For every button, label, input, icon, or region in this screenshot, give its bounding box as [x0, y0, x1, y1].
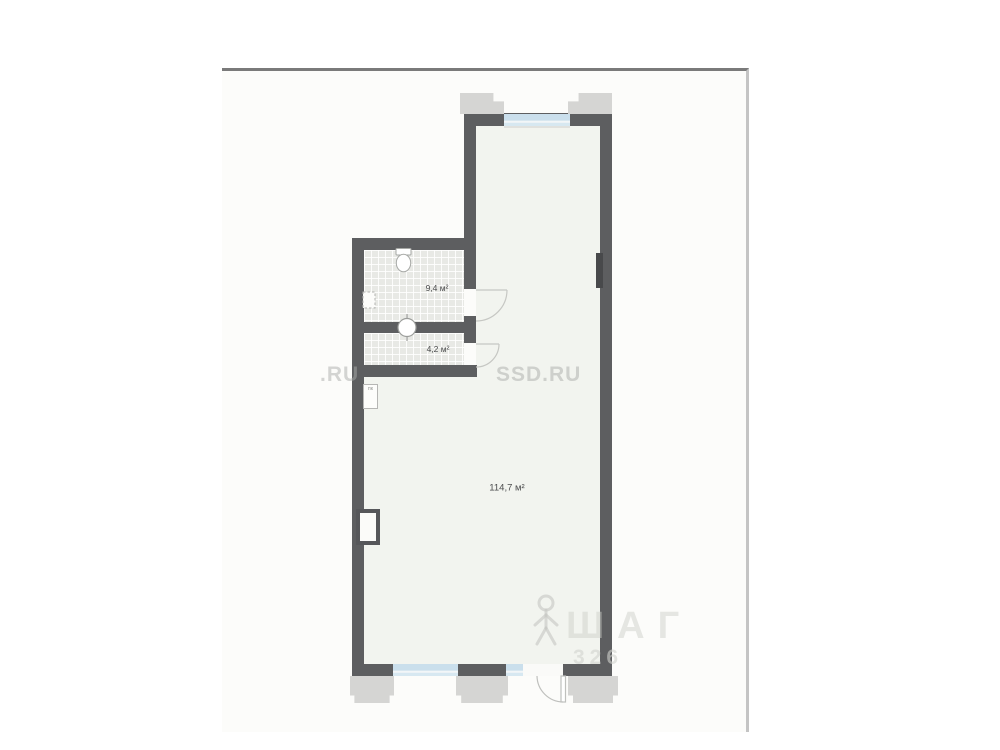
screenshot-canvas: 9,4 м² 4,2 м² 114,7 м² пк .RU SSD.RU ШАГ… — [0, 0, 1000, 750]
wall-bathroom-top — [352, 238, 476, 250]
pier-bottom-left — [350, 676, 394, 703]
wall-right — [600, 113, 612, 676]
wall-bathroom-divider — [364, 322, 476, 333]
pier-bottom-right — [568, 676, 618, 703]
watermark-center: SSD.RU — [496, 363, 581, 387]
watermark-left-fragment: .RU — [320, 363, 359, 387]
window-top — [504, 114, 570, 126]
window-top-sill — [504, 126, 570, 128]
pier-bottom-middle — [456, 676, 508, 703]
wall-bathroom-bottom — [352, 365, 477, 377]
watermark-brand-number: 326 — [573, 646, 623, 670]
entrance-door-opening — [523, 664, 563, 676]
room-area-label-42: 4,2 м² — [427, 344, 450, 354]
main-room-floor — [476, 126, 600, 664]
main-room-floor-left — [364, 377, 476, 664]
watermark-person-icon — [526, 592, 566, 650]
wall-bottom-left-segment — [352, 664, 393, 676]
wall-left — [352, 238, 364, 676]
bathroom-94-tile-floor — [364, 250, 464, 322]
wall-recess-panel — [596, 253, 603, 288]
watermark-brand-text: ШАГ — [566, 605, 746, 648]
window-bottom-left — [393, 664, 458, 676]
window-bottom-center — [506, 664, 523, 676]
wall-tower-left — [464, 113, 476, 289]
wall-bottom-middle-segment — [458, 664, 506, 676]
room-area-label-main: 114,7 м² — [489, 483, 524, 494]
room-area-label-94: 9,4 м² — [426, 283, 449, 293]
utility-box: пк — [363, 384, 378, 409]
wall-niche — [356, 509, 380, 545]
